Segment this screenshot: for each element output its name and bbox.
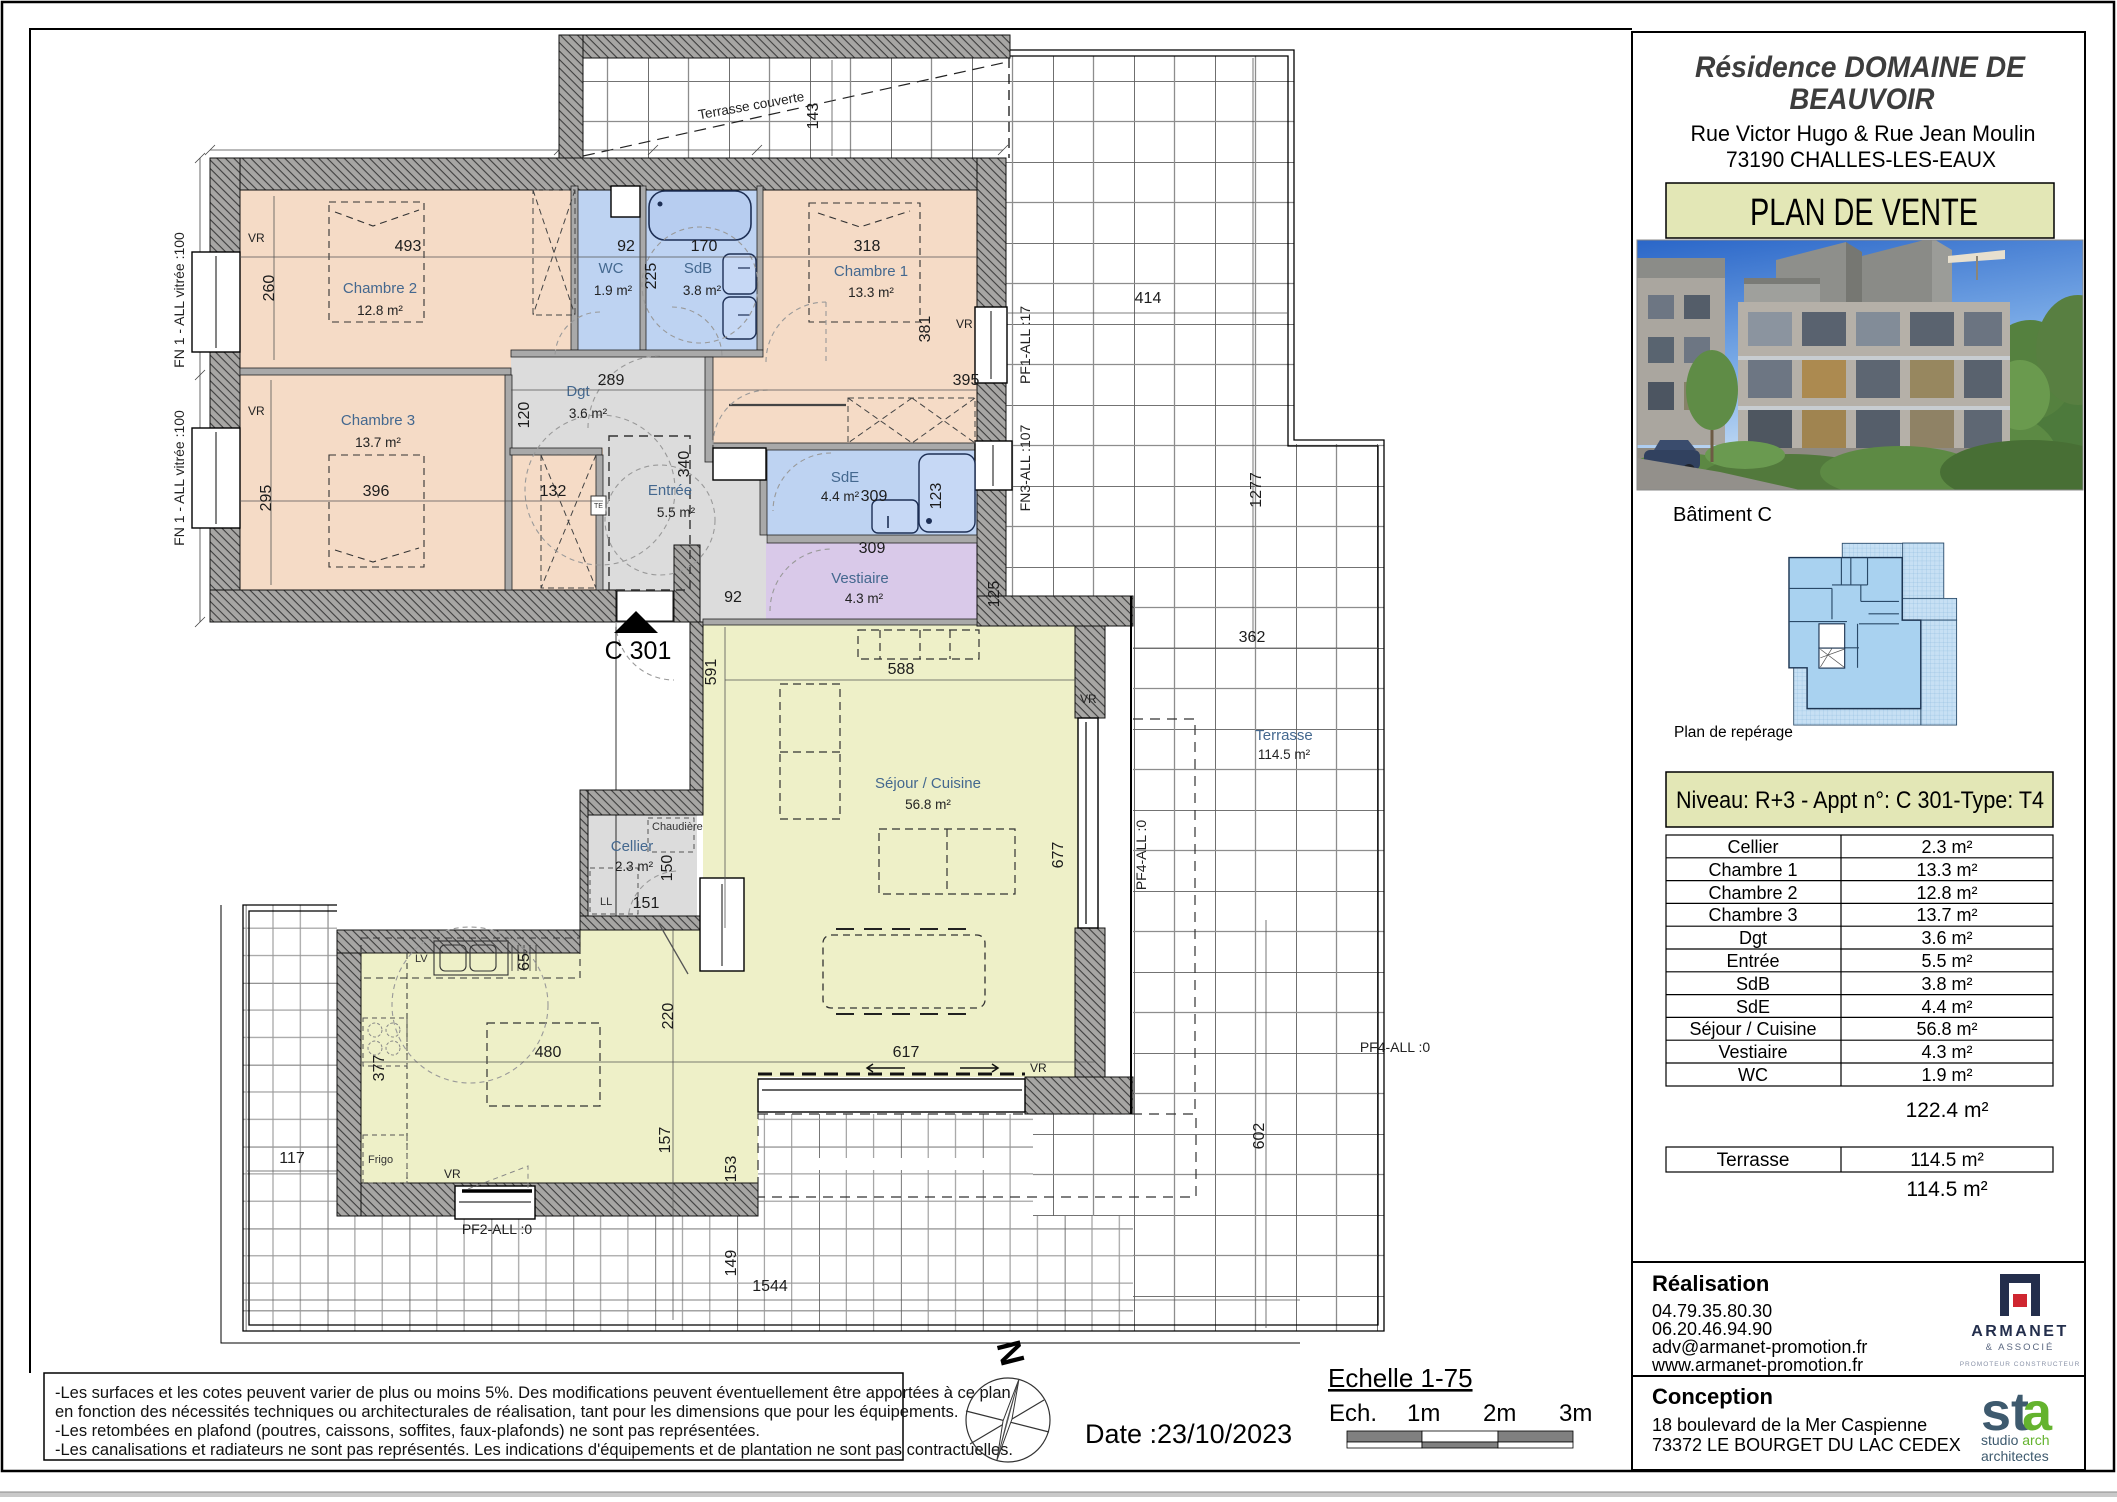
- svg-text:295: 295: [258, 485, 275, 512]
- svg-text:VR: VR: [1030, 1061, 1047, 1075]
- svg-text:adv@armanet-promotion.fr: adv@armanet-promotion.fr: [1652, 1337, 1867, 1357]
- svg-text:92: 92: [724, 589, 742, 606]
- svg-text:1.9 m²: 1.9 m²: [594, 283, 633, 298]
- svg-text:309: 309: [861, 488, 888, 505]
- svg-text:PF1-ALL :17: PF1-ALL :17: [1017, 306, 1033, 384]
- svg-text:220: 220: [660, 1003, 677, 1030]
- svg-text:143: 143: [805, 103, 822, 130]
- svg-text:5.5 m²: 5.5 m²: [1921, 951, 1972, 971]
- svg-text:73190 CHALLES-LES-EAUX: 73190 CHALLES-LES-EAUX: [1726, 147, 1996, 172]
- svg-text:3.6 m²: 3.6 m²: [1921, 928, 1972, 948]
- svg-text:395: 395: [953, 372, 980, 389]
- svg-text:Chambre 2: Chambre 2: [1708, 883, 1797, 903]
- svg-text:BEAUVOIR: BEAUVOIR: [1790, 83, 1935, 116]
- svg-text:1.9 m²: 1.9 m²: [1921, 1065, 1972, 1085]
- svg-text:4.3 m²: 4.3 m²: [1921, 1042, 1972, 1062]
- svg-text:PF4-ALL :0: PF4-ALL :0: [1133, 820, 1149, 891]
- svg-text:617: 617: [893, 1044, 920, 1061]
- svg-text:123: 123: [928, 483, 945, 510]
- svg-text:56.8 m²: 56.8 m²: [1916, 1019, 1977, 1039]
- svg-text:Réalisation: Réalisation: [1652, 1271, 1769, 1296]
- svg-text:18 boulevard de la Mer Caspien: 18 boulevard de la Mer Caspienne: [1652, 1415, 1927, 1435]
- svg-text:2.3 m²: 2.3 m²: [615, 859, 654, 874]
- svg-text:SdE: SdE: [1736, 997, 1770, 1017]
- svg-text:289: 289: [598, 372, 625, 389]
- svg-text:Séjour / Cuisine: Séjour / Cuisine: [1689, 1019, 1816, 1039]
- svg-text:588: 588: [888, 661, 915, 678]
- svg-text:Dgt: Dgt: [1739, 928, 1767, 948]
- svg-text:SdB: SdB: [1736, 974, 1770, 994]
- svg-text:Conception: Conception: [1652, 1384, 1773, 1409]
- svg-text:Cellier: Cellier: [1727, 837, 1778, 857]
- svg-text:396: 396: [363, 483, 390, 500]
- svg-text:4.4 m²: 4.4 m²: [821, 489, 860, 504]
- svg-text:120: 120: [516, 402, 533, 429]
- svg-text:13.3 m²: 13.3 m²: [1916, 860, 1977, 880]
- svg-text:3.8 m²: 3.8 m²: [1921, 974, 1972, 994]
- svg-text:Séjour / Cuisine: Séjour / Cuisine: [875, 775, 981, 792]
- svg-text:13.7 m²: 13.7 m²: [355, 435, 401, 450]
- svg-text:125: 125: [986, 581, 1003, 608]
- svg-text:VR: VR: [956, 317, 973, 331]
- svg-text:VR: VR: [248, 404, 265, 418]
- svg-text:LV: LV: [415, 953, 428, 965]
- svg-text:3.6 m²: 3.6 m²: [569, 406, 608, 421]
- svg-text:114.5 m²: 114.5 m²: [1910, 1150, 1984, 1171]
- svg-text:1544: 1544: [752, 1278, 788, 1295]
- svg-text:Entrée: Entrée: [1726, 951, 1779, 971]
- svg-text:13.3 m²: 13.3 m²: [848, 285, 894, 300]
- svg-text:73372 LE BOURGET DU LAC CEDEX: 73372 LE BOURGET DU LAC CEDEX: [1652, 1435, 1961, 1455]
- svg-text:-Les retombées en plafond (pou: -Les retombées en plafond (poutres, cais…: [55, 1422, 760, 1440]
- svg-text:WC: WC: [599, 260, 624, 277]
- svg-text:225: 225: [643, 263, 660, 290]
- svg-text:04.79.35.80.30: 04.79.35.80.30: [1652, 1301, 1772, 1321]
- svg-text:602: 602: [1251, 1123, 1268, 1150]
- svg-text:Chaudière: Chaudière: [652, 821, 703, 833]
- svg-text:& ASSOCIÉ: & ASSOCIÉ: [1986, 1342, 2055, 1353]
- svg-text:149: 149: [723, 1250, 740, 1277]
- svg-text:591: 591: [703, 659, 720, 686]
- svg-text:Cellier: Cellier: [611, 838, 654, 855]
- svg-text:117: 117: [279, 1150, 305, 1167]
- svg-text:studio arch: studio arch: [1981, 1432, 2049, 1448]
- svg-text:362: 362: [1239, 629, 1266, 646]
- svg-text:318: 318: [854, 238, 881, 255]
- svg-text:Chambre 2: Chambre 2: [343, 280, 417, 297]
- svg-text:-Les surfaces et les cotes peu: -Les surfaces et les cotes peuvent varie…: [55, 1384, 1011, 1402]
- svg-text:677: 677: [1050, 842, 1067, 869]
- svg-text:06.20.46.94.90: 06.20.46.94.90: [1652, 1319, 1772, 1339]
- svg-text:en fonction des nécessités tec: en fonction des nécessités techniques ou…: [55, 1403, 958, 1421]
- svg-text:3.8 m²: 3.8 m²: [683, 283, 722, 298]
- svg-text:Chambre 3: Chambre 3: [341, 412, 415, 429]
- svg-text:PROMOTEUR CONSTRUCTEUR: PROMOTEUR CONSTRUCTEUR: [1960, 1361, 2081, 1368]
- svg-text:Niveau: R+3 - Appt n°: C 301-: Niveau: R+3 - Appt n°: C 301-Type: T4: [1676, 787, 2044, 814]
- svg-text:1277: 1277: [1248, 472, 1265, 508]
- svg-text:PF4-ALL :0: PF4-ALL :0: [1360, 1039, 1431, 1055]
- svg-text:VR: VR: [1080, 692, 1097, 706]
- svg-text:480: 480: [535, 1044, 562, 1061]
- svg-text:C 301: C 301: [605, 637, 672, 665]
- svg-text:ARMANET: ARMANET: [1971, 1323, 2069, 1340]
- svg-text:132: 132: [540, 483, 567, 500]
- svg-text:414: 414: [1135, 290, 1162, 307]
- svg-text:Echelle 1-75: Echelle 1-75: [1328, 1363, 1473, 1393]
- svg-text:151: 151: [633, 895, 660, 912]
- svg-text:Ech.: Ech.: [1329, 1400, 1377, 1427]
- svg-text:56.8 m²: 56.8 m²: [905, 797, 951, 812]
- svg-text:114.5 m²: 114.5 m²: [1258, 747, 1311, 762]
- svg-text:260: 260: [261, 275, 278, 302]
- svg-text:114.5 m²: 114.5 m²: [1906, 1178, 1987, 1201]
- svg-text:Entrée: Entrée: [648, 482, 692, 499]
- svg-text:1m: 1m: [1407, 1400, 1440, 1427]
- svg-text:5.5 m²: 5.5 m²: [657, 505, 696, 520]
- svg-text:FN3-ALL :107: FN3-ALL :107: [1017, 424, 1033, 511]
- svg-text:FN 1 - ALL vitrée :100: FN 1 - ALL vitrée :100: [171, 232, 187, 368]
- svg-text:157: 157: [657, 1127, 674, 1154]
- svg-text:Frigo: Frigo: [368, 1154, 393, 1166]
- svg-text:Chambre 1: Chambre 1: [834, 263, 908, 280]
- svg-text:493: 493: [395, 238, 422, 255]
- svg-text:WC: WC: [1738, 1065, 1768, 1085]
- svg-text:170: 170: [691, 238, 718, 255]
- svg-text:309: 309: [859, 540, 886, 557]
- svg-text:architectes: architectes: [1981, 1448, 2049, 1464]
- svg-text:Date :23/10/2023: Date :23/10/2023: [1085, 1419, 1292, 1449]
- svg-text:153: 153: [723, 1156, 740, 1183]
- svg-text:12.8 m²: 12.8 m²: [1916, 883, 1977, 903]
- svg-text:13.7 m²: 13.7 m²: [1916, 905, 1977, 925]
- svg-text:Dgt: Dgt: [566, 383, 590, 400]
- svg-text:4.3 m²: 4.3 m²: [845, 591, 884, 606]
- svg-text:TE: TE: [594, 503, 603, 510]
- svg-text:92: 92: [617, 238, 635, 255]
- svg-text:4.4 m²: 4.4 m²: [1921, 997, 1972, 1017]
- svg-text:Bâtiment C: Bâtiment C: [1673, 504, 1772, 526]
- svg-text:Chambre 3: Chambre 3: [1708, 905, 1797, 925]
- svg-text:LL: LL: [600, 896, 612, 908]
- svg-text:122.4 m²: 122.4 m²: [1906, 1099, 1989, 1122]
- svg-text:SdE: SdE: [831, 469, 859, 486]
- svg-text:Terrasse: Terrasse: [1255, 727, 1313, 744]
- svg-text:150: 150: [659, 855, 676, 882]
- svg-text:Plan de repérage: Plan de repérage: [1674, 724, 1793, 741]
- svg-text:Chambre 1: Chambre 1: [1708, 860, 1797, 880]
- svg-text:Vestiaire: Vestiaire: [831, 570, 889, 587]
- svg-text:3m: 3m: [1559, 1400, 1592, 1427]
- svg-text:PLAN DE VENTE: PLAN DE VENTE: [1750, 192, 1978, 234]
- svg-text:VR: VR: [248, 231, 265, 245]
- svg-text:65: 65: [516, 953, 533, 971]
- svg-text:SdB: SdB: [684, 260, 712, 277]
- svg-text:12.8 m²: 12.8 m²: [357, 303, 403, 318]
- svg-text:340: 340: [676, 451, 693, 478]
- svg-text:-Les canalisations et radiateu: -Les canalisations et radiateurs ne sont…: [55, 1441, 1013, 1459]
- svg-text:www.armanet-promotion.fr: www.armanet-promotion.fr: [1651, 1355, 1863, 1375]
- svg-text:Vestiaire: Vestiaire: [1718, 1042, 1787, 1062]
- svg-text:Rue Victor Hugo & Rue Jean Mou: Rue Victor Hugo & Rue Jean Moulin: [1691, 121, 2036, 146]
- svg-text:Résidence DOMAINE DE: Résidence DOMAINE DE: [1695, 51, 2026, 84]
- svg-text:Terrasse: Terrasse: [1717, 1150, 1790, 1171]
- svg-text:2.3 m²: 2.3 m²: [1921, 837, 1972, 857]
- svg-text:PF2-ALL :0: PF2-ALL :0: [462, 1221, 533, 1237]
- svg-text:FN 1 - ALL vitrée :100: FN 1 - ALL vitrée :100: [171, 410, 187, 546]
- svg-text:381: 381: [917, 316, 934, 343]
- svg-text:2m: 2m: [1483, 1400, 1516, 1427]
- svg-text:VR: VR: [444, 1167, 461, 1181]
- svg-text:377: 377: [371, 1055, 388, 1082]
